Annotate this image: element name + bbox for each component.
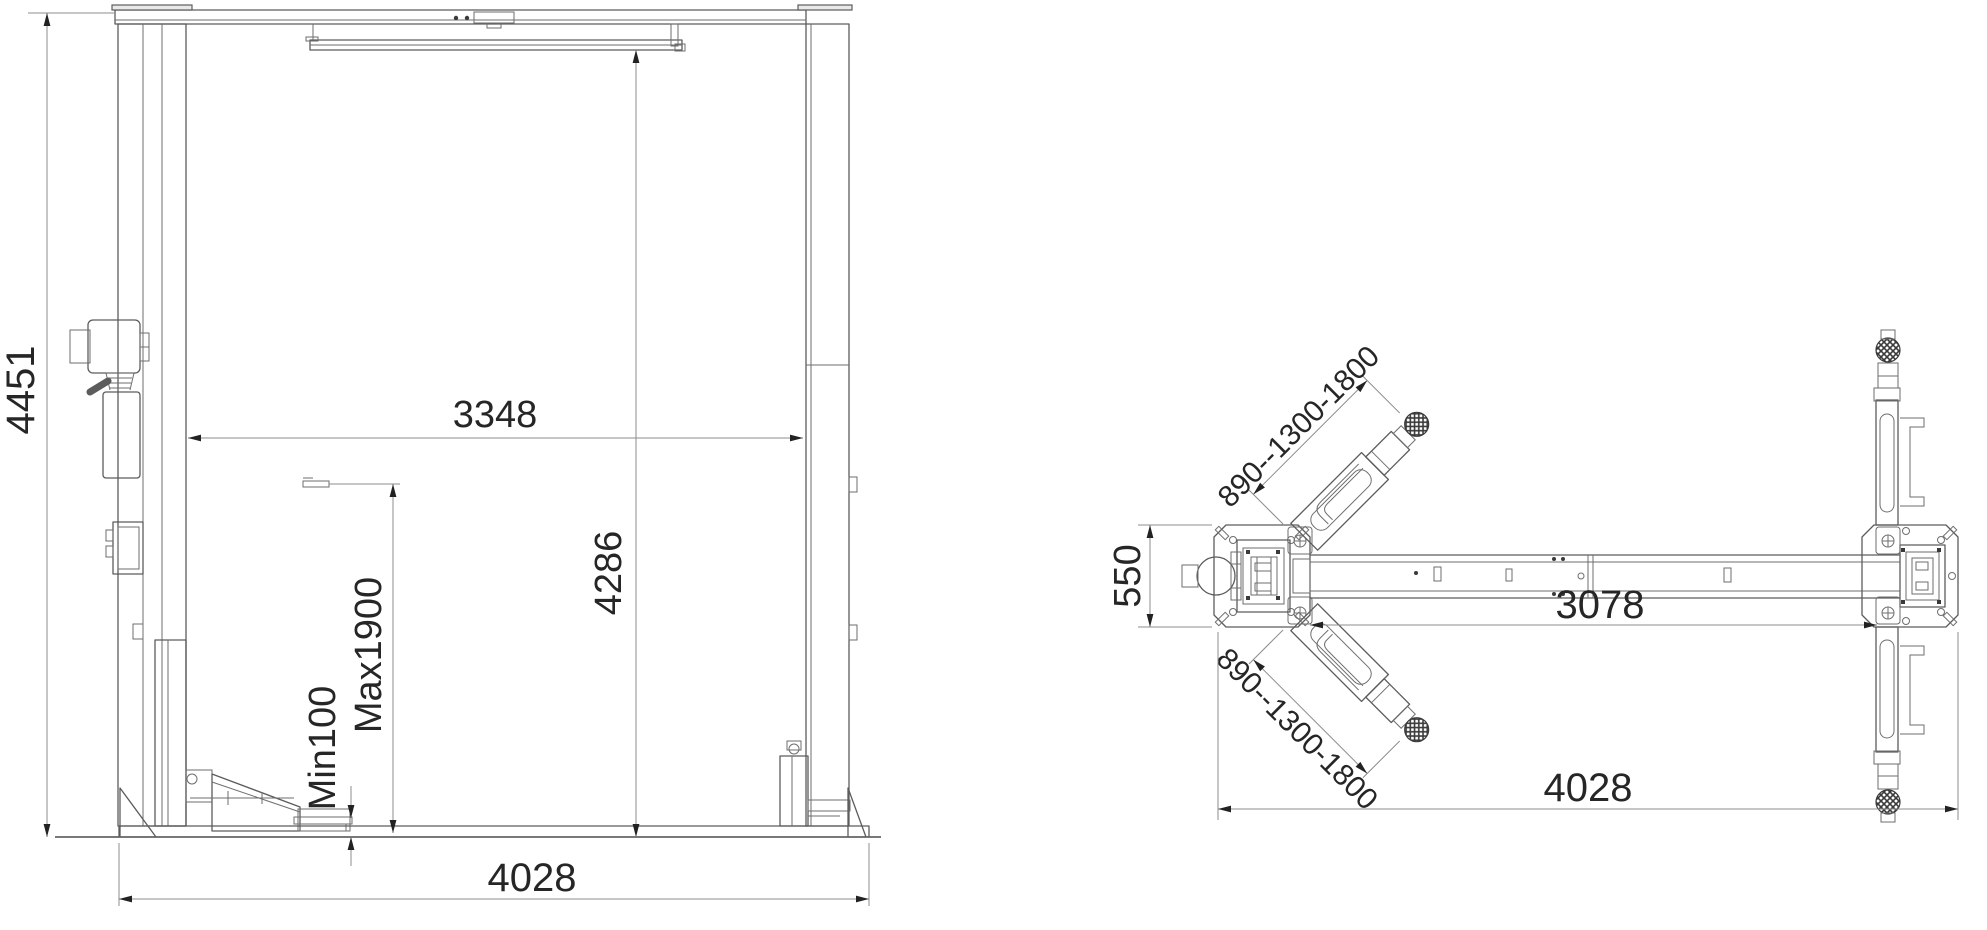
control-button (106, 530, 113, 541)
arm-pin (187, 774, 197, 784)
two-post-lift-drawing: 4451 3348 4286 Max1900 (0, 0, 1987, 930)
dim-label-lower-arm-reach: 890--1300-1800 (1210, 642, 1384, 816)
lift-pad-top (1876, 790, 1900, 814)
plan-swing-arm-upper: 890--1300-1800 (1212, 340, 1446, 574)
arm-hook (1313, 464, 1373, 524)
dim-min-pad-height: Min100 (302, 686, 354, 866)
plan-right-column (1862, 330, 1958, 822)
carriage-right (1900, 545, 1945, 607)
anchor-hole (1903, 618, 1910, 625)
beam-bolt (454, 16, 458, 20)
folded-arm-up (1874, 330, 1924, 525)
dim-label-overall-height: 4451 (0, 346, 43, 435)
dim-label-overall-width-front: 4028 (488, 856, 577, 900)
dim-label-inner-width: 3348 (453, 394, 538, 436)
oil-tank (103, 392, 140, 478)
dim-label-upper-arm-reach: 890--1300-1800 (1212, 340, 1386, 514)
column-bracket (133, 624, 143, 639)
arm-hook (1900, 646, 1924, 734)
dim-inner-span: 3078 (1310, 583, 1877, 628)
anchor-hole (1230, 609, 1237, 616)
anchor-gusset (848, 788, 866, 837)
front-right-carriage (780, 741, 850, 826)
dim-clearance-height: 4286 (588, 50, 639, 837)
front-crossbeam (112, 5, 852, 28)
plan-swing-arm-lower: 890--1300-1800 (1210, 581, 1446, 817)
right-column-top-plate (798, 5, 852, 10)
control-button (106, 546, 113, 557)
dim-overall-height: 4451 (0, 13, 114, 837)
lift-pad-top (1400, 407, 1434, 441)
front-right-column (780, 24, 857, 826)
raised-pad-symbol (303, 481, 329, 487)
motor-top (1197, 557, 1235, 595)
arm-hook (1313, 630, 1373, 690)
lift-pad (294, 817, 352, 824)
anchor-hole (1938, 609, 1945, 616)
anchor-hole (1938, 537, 1945, 544)
dim-label-max-lift-height: Max1900 (348, 577, 390, 733)
dim-label-min-pad-height: Min100 (302, 686, 344, 811)
anchor-hole (1230, 537, 1237, 544)
lift-pad-top (1876, 338, 1900, 362)
dim-inner-width: 3348 (188, 394, 803, 441)
left-column-top-plate (112, 5, 192, 10)
front-view: 4451 3348 4286 Max1900 (0, 5, 881, 906)
dim-overall-width-front: 4028 (119, 843, 869, 906)
column-bracket (849, 625, 857, 640)
front-base (55, 788, 881, 837)
dim-label-clearance-height: 4286 (588, 531, 630, 616)
carriage-left (1237, 540, 1290, 612)
dim-label-base-plate-depth: 550 (1107, 544, 1149, 607)
column-bracket (849, 477, 857, 492)
limit-switch-box (474, 12, 514, 23)
dim-label-inner-span: 3078 (1556, 583, 1645, 627)
top-view: 890--1300-1800 890--1300-1800 550 (1107, 330, 1958, 822)
plan-left-column (1182, 525, 1312, 627)
lift-pad-top (1400, 713, 1434, 747)
arm-hook (1900, 418, 1924, 506)
folded-arm-stub (808, 800, 850, 811)
dim-label-overall-width-plan: 4028 (1544, 766, 1633, 810)
anchor-hole (1949, 573, 1956, 580)
folded-arm-down (1874, 627, 1924, 822)
power-unit-motor (70, 320, 149, 392)
arm-pin (789, 744, 799, 754)
anchor-gusset (120, 788, 156, 837)
control-box (106, 522, 143, 574)
release-handle (90, 381, 108, 392)
technical-drawing-page: 4451 3348 4286 Max1900 (0, 0, 1987, 930)
dim-base-plate-depth: 550 (1107, 525, 1212, 627)
anchor-hole (1903, 528, 1910, 535)
beam-bolt (465, 16, 469, 20)
